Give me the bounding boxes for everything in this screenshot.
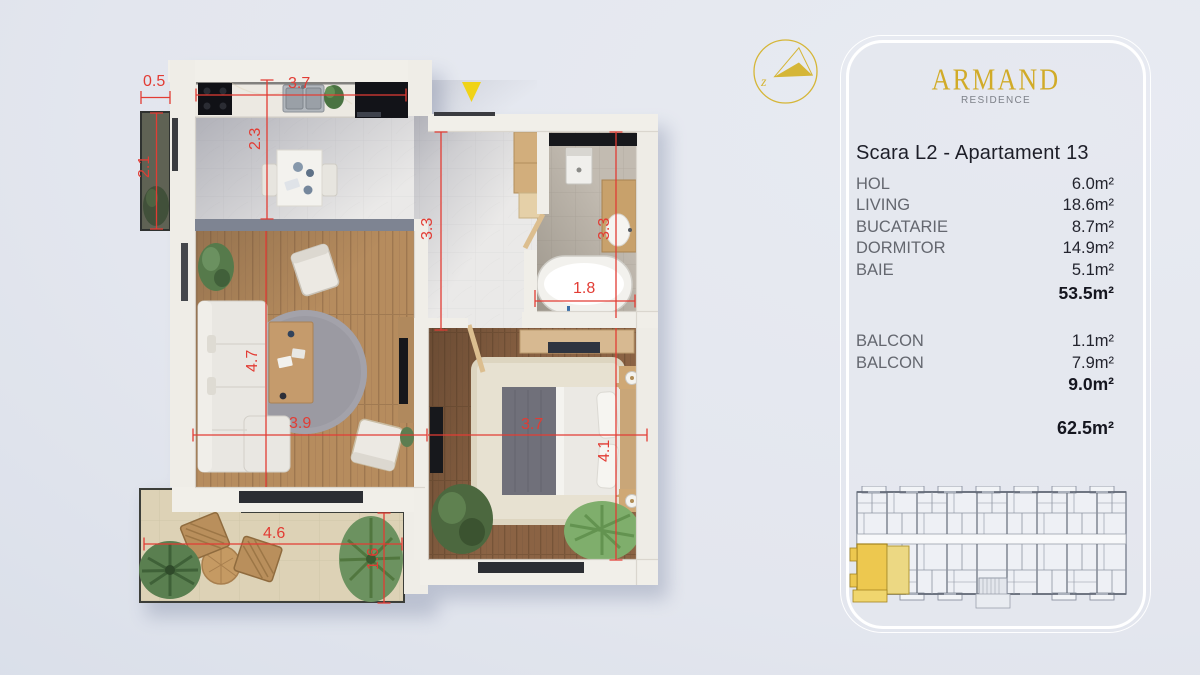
svg-text:3.7: 3.7 bbox=[521, 416, 543, 433]
svg-text:3.3: 3.3 bbox=[596, 218, 613, 240]
svg-text:1.6: 1.6 bbox=[365, 548, 382, 570]
svg-text:3.3: 3.3 bbox=[419, 218, 436, 240]
svg-text:2.1: 2.1 bbox=[136, 156, 153, 178]
svg-text:4.6: 4.6 bbox=[263, 525, 285, 542]
svg-text:4.1: 4.1 bbox=[596, 440, 613, 462]
svg-text:z: z bbox=[760, 75, 767, 90]
svg-text:1.8: 1.8 bbox=[573, 280, 595, 297]
svg-text:2.3: 2.3 bbox=[247, 128, 264, 150]
svg-text:3.9: 3.9 bbox=[289, 415, 311, 432]
svg-text:0.5: 0.5 bbox=[143, 73, 165, 90]
svg-text:3.7: 3.7 bbox=[288, 75, 310, 92]
svg-text:4.7: 4.7 bbox=[244, 350, 261, 372]
